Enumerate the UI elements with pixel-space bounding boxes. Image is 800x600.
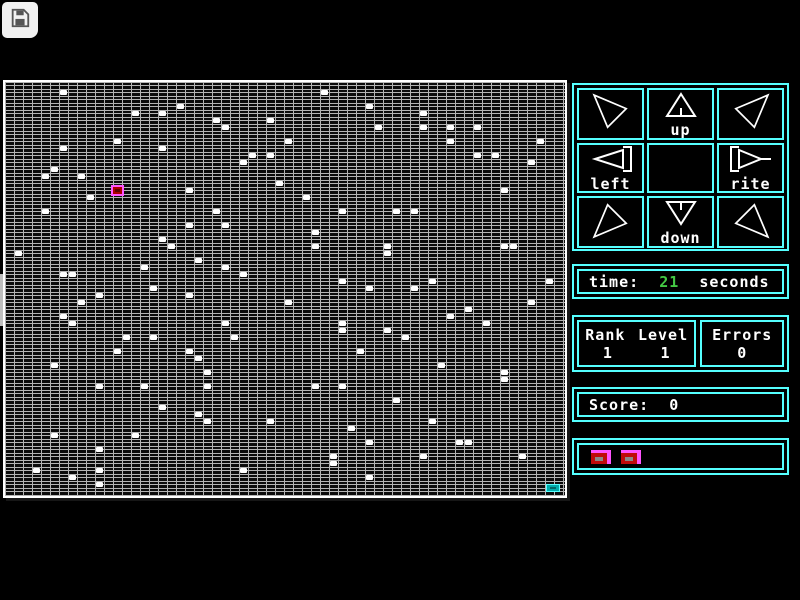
errors-label: Errors	[712, 326, 772, 344]
maze-white-cell	[195, 258, 202, 263]
maze-white-cell	[69, 272, 76, 277]
arrow-down-icon	[661, 199, 701, 231]
time-panel: time: 21 seconds	[572, 264, 789, 299]
maze-white-cell	[501, 370, 508, 375]
maze-white-cell	[186, 223, 193, 228]
goal-cell	[546, 484, 560, 492]
maze-white-cell	[150, 335, 157, 340]
maze-white-cell	[474, 125, 481, 130]
maze-white-cell	[51, 363, 58, 368]
maze-white-cell	[78, 300, 85, 305]
maze-white-cell	[312, 384, 319, 389]
maze-white-cell	[411, 286, 418, 291]
maze-white-cell	[60, 314, 67, 319]
maze-white-cell	[159, 405, 166, 410]
errors-value: 0	[737, 344, 747, 362]
maze-white-cell	[42, 174, 49, 179]
maze-white-cell	[159, 146, 166, 151]
level-label: Level	[638, 326, 688, 344]
maze-white-cell	[69, 475, 76, 480]
maze-white-cell	[240, 468, 247, 473]
direction-pad: up left rite down	[572, 83, 789, 251]
arrow-left-icon	[587, 145, 635, 177]
maze-white-cell	[249, 153, 256, 158]
maze-white-cell	[447, 125, 454, 130]
arrow-down-right-icon	[725, 198, 777, 246]
maze-white-cell	[546, 279, 553, 284]
rank-value: 1	[603, 344, 613, 362]
maze-white-cell	[141, 384, 148, 389]
time-unit: seconds	[699, 273, 769, 291]
maze-white-cell	[222, 125, 229, 130]
maze-white-cell	[438, 363, 445, 368]
maze-white-cell	[339, 279, 346, 284]
pad-left-button[interactable]: left	[577, 143, 644, 193]
maze-white-cell	[528, 300, 535, 305]
maze-white-cell	[123, 335, 130, 340]
maze-white-cell	[276, 181, 283, 186]
arrow-up-icon	[661, 91, 701, 123]
maze-white-cell	[501, 188, 508, 193]
maze-white-cell	[429, 279, 436, 284]
pad-down-right-button[interactable]	[717, 196, 784, 248]
maze-white-cell	[537, 139, 544, 144]
maze-white-cell	[60, 272, 67, 277]
maze-white-cell	[186, 349, 193, 354]
maze-white-cell	[69, 321, 76, 326]
maze-white-cell	[186, 188, 193, 193]
maze-white-cell	[213, 209, 220, 214]
maze-white-cell	[285, 300, 292, 305]
maze-white-cell	[312, 244, 319, 249]
arrow-down-left-icon	[585, 198, 637, 246]
maze-white-cell	[195, 412, 202, 417]
maze-white-cell	[240, 272, 247, 277]
maze-white-cell	[384, 328, 391, 333]
maze-white-cell	[222, 321, 229, 326]
maze-white-cell	[150, 286, 157, 291]
maze-white-cell	[186, 293, 193, 298]
maze-white-cell	[429, 419, 436, 424]
maze-white-cell	[204, 419, 211, 424]
arrow-up-left-icon	[585, 90, 637, 138]
maze-white-cell	[60, 90, 67, 95]
maze-white-cell	[222, 265, 229, 270]
pad-up-left-button[interactable]	[577, 88, 644, 140]
maze-white-cell	[501, 244, 508, 249]
maze-white-cell	[510, 244, 517, 249]
pad-down-label: down	[660, 231, 700, 245]
maze-white-cell	[159, 111, 166, 116]
maze-white-cell	[447, 314, 454, 319]
red-button-2[interactable]	[621, 450, 641, 464]
maze-white-cell	[492, 153, 499, 158]
maze-white-cell	[132, 433, 139, 438]
maze-white-cell	[60, 146, 67, 151]
maze-white-cell	[132, 111, 139, 116]
maze-white-cell	[15, 251, 22, 256]
maze-field[interactable]	[5, 82, 565, 496]
maze-white-cell	[96, 447, 103, 452]
maze-white-cell	[339, 384, 346, 389]
action-buttons-panel	[572, 438, 789, 475]
maze-white-cell	[78, 174, 85, 179]
pad-down-left-button[interactable]	[577, 196, 644, 248]
maze-white-cell	[168, 244, 175, 249]
maze-white-cell	[96, 384, 103, 389]
player-cell[interactable]	[111, 185, 124, 196]
maze-white-cell	[411, 209, 418, 214]
maze-white-cell	[456, 440, 463, 445]
maze-white-cell	[402, 335, 409, 340]
maze-white-cell	[195, 356, 202, 361]
maze-white-cell	[375, 125, 382, 130]
maze-white-cell	[267, 153, 274, 158]
maze-white-cell	[366, 475, 373, 480]
maze-white-cell	[465, 307, 472, 312]
maze-white-cell	[339, 209, 346, 214]
maze-white-cell	[339, 321, 346, 326]
time-value: 21	[659, 273, 679, 291]
red-button-1[interactable]	[591, 450, 611, 464]
maze-white-cell	[303, 195, 310, 200]
maze-white-cell	[267, 419, 274, 424]
time-label: time:	[589, 273, 639, 291]
maze-white-cell	[141, 265, 148, 270]
maze-white-cell	[384, 251, 391, 256]
maze-white-cell	[519, 454, 526, 459]
maze-white-cell	[501, 377, 508, 382]
maze-white-cell	[465, 440, 472, 445]
maze-white-cell	[384, 244, 391, 249]
maze-white-cell	[51, 433, 58, 438]
maze-white-cell	[267, 118, 274, 123]
maze-white-cell	[420, 111, 427, 116]
floppy-disk-icon	[9, 7, 31, 33]
rank-errors-panel: Rank Level 1 1 Errors 0	[572, 315, 789, 372]
maze-white-cell	[366, 286, 373, 291]
pad-rite-button[interactable]: rite	[717, 143, 784, 193]
rank-label: Rank	[585, 326, 625, 344]
maze-white-cell	[330, 454, 337, 459]
maze-white-cell	[393, 209, 400, 214]
rank-level-box: Rank Level 1 1	[577, 320, 696, 367]
maze-white-cell	[420, 125, 427, 130]
maze-white-cell	[474, 153, 481, 158]
maze-white-cell	[393, 398, 400, 403]
maze-white-cell	[213, 118, 220, 123]
maze-white-cell	[114, 139, 121, 144]
maze-white-cell	[204, 384, 211, 389]
maze-white-cell	[339, 328, 346, 333]
arrow-up-right-icon	[725, 90, 777, 138]
score-value: 0	[669, 396, 679, 414]
level-value: 1	[661, 344, 671, 362]
pad-up-label: up	[670, 123, 690, 137]
maze-white-cell	[222, 223, 229, 228]
maze-white-cell	[420, 454, 427, 459]
maze-white-cell	[330, 461, 337, 466]
score-panel: Score: 0	[572, 387, 789, 422]
maze-white-cell	[231, 335, 238, 340]
score-label: Score:	[589, 396, 649, 414]
pad-down-button[interactable]: down	[647, 196, 714, 248]
maze-white-cell	[348, 426, 355, 431]
maze-white-cell	[42, 209, 49, 214]
maze-panel	[3, 80, 567, 498]
maze-white-cell	[366, 104, 373, 109]
pad-rite-label: rite	[730, 177, 770, 191]
maze-white-cell	[204, 370, 211, 375]
maze-white-cell	[96, 468, 103, 473]
maze-white-cell	[312, 230, 319, 235]
maze-white-cell	[114, 349, 121, 354]
maze-white-cell	[33, 468, 40, 473]
pad-left-label: left	[590, 177, 630, 191]
maze-white-cell	[51, 167, 58, 172]
maze-white-cell	[321, 90, 328, 95]
save-button[interactable]	[2, 2, 38, 38]
maze-white-cell	[96, 482, 103, 487]
pad-center-cell	[647, 143, 714, 193]
maze-white-cell	[240, 160, 247, 165]
maze-white-cell	[447, 139, 454, 144]
arrow-right-icon	[727, 145, 775, 177]
errors-box: Errors 0	[700, 320, 784, 367]
maze-white-cell	[87, 195, 94, 200]
maze-white-cell	[159, 237, 166, 242]
maze-white-cell	[483, 321, 490, 326]
maze-white-cell	[357, 349, 364, 354]
pad-up-right-button[interactable]	[717, 88, 784, 140]
maze-white-cell	[177, 104, 184, 109]
maze-white-cell	[96, 293, 103, 298]
maze-white-cell	[285, 139, 292, 144]
maze-white-cell	[528, 160, 535, 165]
pad-up-button[interactable]: up	[647, 88, 714, 140]
maze-white-cell	[366, 440, 373, 445]
